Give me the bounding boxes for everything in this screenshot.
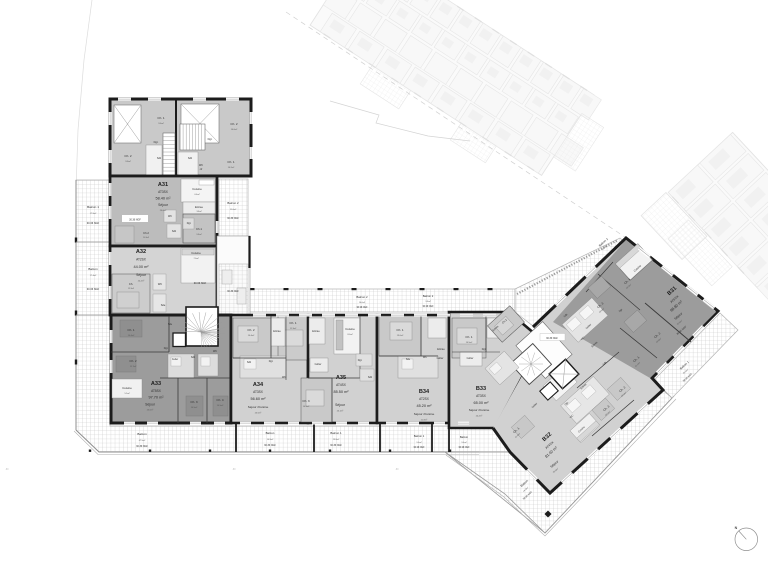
svg-text:Ch. 2: Ch. 2 bbox=[129, 359, 137, 363]
svg-text:16.0m²: 16.0m² bbox=[359, 301, 366, 304]
svg-text:Séjour /Cuisine: Séjour /Cuisine bbox=[414, 412, 435, 416]
svg-text:Cellier: Cellier bbox=[437, 357, 444, 360]
svg-text:Cuisine: Cuisine bbox=[345, 327, 355, 331]
svg-text:Séjour /Cuisine: Séjour /Cuisine bbox=[248, 405, 269, 409]
svg-text:58.40 m²: 58.40 m² bbox=[155, 196, 171, 201]
svg-text:10.3m²: 10.3m² bbox=[143, 236, 149, 239]
svg-text:44.00 m²: 44.00 m² bbox=[133, 264, 149, 269]
svg-text:20.2m²: 20.2m² bbox=[138, 280, 145, 283]
svg-text:AT3SX: AT3SX bbox=[158, 190, 169, 194]
svg-text:9.6m²: 9.6m² bbox=[416, 441, 421, 444]
svg-text:97.70 m²: 97.70 m² bbox=[148, 395, 164, 400]
svg-text:N: N bbox=[735, 526, 738, 530]
svg-text:24.2m²: 24.2m² bbox=[476, 415, 483, 418]
svg-text:10.5m²: 10.5m² bbox=[217, 404, 224, 407]
svg-text:Dgt.: Dgt. bbox=[269, 360, 274, 363]
svg-text:A32: A32 bbox=[136, 249, 146, 255]
svg-text:6.6m²: 6.6m² bbox=[194, 193, 199, 196]
svg-text:A34: A34 bbox=[253, 382, 264, 388]
svg-text:Ch.2: Ch.2 bbox=[143, 231, 149, 235]
svg-text:Ch. 1: Ch. 1 bbox=[227, 160, 235, 164]
svg-text:10.6m²: 10.6m² bbox=[231, 128, 238, 131]
svg-text:Cuisine: Cuisine bbox=[192, 187, 202, 191]
svg-text:30.36 NGF: 30.36 NGF bbox=[357, 307, 369, 309]
svg-text:10.4m²: 10.4m² bbox=[128, 334, 135, 337]
svg-text:AT3SX: AT3SX bbox=[476, 394, 487, 398]
svg-text:25.5m²: 25.5m² bbox=[255, 412, 262, 415]
svg-text:30.36 NGF: 30.36 NGF bbox=[546, 337, 558, 340]
svg-text:Ch. 1: Ch. 1 bbox=[157, 116, 165, 120]
svg-text:Ch. 2: Ch. 2 bbox=[124, 154, 132, 158]
svg-text:Sde: Sde bbox=[168, 323, 173, 326]
svg-text:8.0m²: 8.0m² bbox=[347, 333, 352, 336]
svg-text:30.36 NGF: 30.36 NGF bbox=[87, 287, 100, 291]
svg-text:AT2SX: AT2SX bbox=[136, 258, 147, 262]
svg-text:Entrée: Entrée bbox=[273, 329, 281, 333]
svg-text:Ch. 2: Ch. 2 bbox=[247, 328, 255, 332]
svg-text:WC: WC bbox=[423, 356, 427, 359]
svg-text:9.8m²: 9.8m² bbox=[196, 233, 201, 236]
svg-text:Ch. 1: Ch. 1 bbox=[465, 335, 473, 339]
svg-text:45.20 m²: 45.20 m² bbox=[416, 403, 432, 408]
svg-text:11.6m²: 11.6m² bbox=[230, 208, 237, 211]
svg-text:7.0m²: 7.0m² bbox=[193, 257, 198, 260]
svg-text:Ch.: Ch. bbox=[129, 282, 133, 286]
svg-text:Ch. 3: Ch. 3 bbox=[190, 400, 198, 404]
svg-text:Ch. 1: Ch. 1 bbox=[396, 328, 404, 332]
svg-text:Dgt.: Dgt. bbox=[482, 348, 487, 351]
svg-text:Sdb: Sdb bbox=[368, 376, 373, 379]
svg-text:30.36 NGF: 30.36 NGF bbox=[330, 444, 342, 447]
svg-text:WC: WC bbox=[213, 350, 217, 353]
svg-text:30.36 NGF: 30.36 NGF bbox=[423, 306, 435, 308]
svg-text:WC: WC bbox=[168, 215, 172, 218]
svg-text:AT2SX: AT2SX bbox=[419, 397, 430, 401]
svg-text:Celier: Celier bbox=[172, 358, 178, 361]
svg-text:17.4m²: 17.4m² bbox=[90, 274, 97, 277]
svg-text:Séjour: Séjour bbox=[136, 273, 147, 277]
svg-text:Ch. 2: Ch. 2 bbox=[230, 122, 238, 126]
svg-text:25.1m²: 25.1m² bbox=[337, 410, 344, 413]
svg-text:Ch. 1: Ch. 1 bbox=[289, 321, 297, 325]
svg-text:Sde: Sde bbox=[161, 303, 166, 307]
svg-text:Sdb: Sdb bbox=[247, 361, 252, 364]
svg-text:30.36 NGF: 30.36 NGF bbox=[227, 290, 239, 293]
svg-text:Balcon 2: Balcon 2 bbox=[423, 294, 434, 298]
svg-text:10.5m²: 10.5m² bbox=[191, 406, 198, 409]
svg-text:9.8m²: 9.8m² bbox=[425, 300, 430, 303]
svg-text:clr: clr bbox=[200, 168, 203, 171]
svg-text:30.36 NGF: 30.36 NGF bbox=[194, 281, 207, 285]
svg-text:65.00 m²: 65.00 m² bbox=[473, 400, 489, 405]
svg-text:30.36 NGF: 30.36 NGF bbox=[87, 221, 100, 225]
svg-text:Sdb: Sdb bbox=[157, 157, 162, 160]
svg-text:B34: B34 bbox=[419, 389, 430, 395]
svg-text:Balcon 1: Balcon 1 bbox=[414, 434, 425, 438]
svg-text:WC: WC bbox=[158, 282, 162, 286]
svg-text:Séjour: Séjour bbox=[335, 403, 346, 407]
svg-text:Cuisine: Cuisine bbox=[191, 251, 201, 255]
svg-text:10.5m²: 10.5m² bbox=[303, 405, 310, 408]
svg-text:56.60 m²: 56.60 m² bbox=[250, 396, 266, 401]
svg-text:5.5m²: 5.5m² bbox=[124, 392, 129, 395]
svg-text:JO: JO bbox=[232, 468, 235, 471]
svg-text:A35: A35 bbox=[336, 375, 346, 381]
svg-text:Dgt.: Dgt. bbox=[154, 140, 159, 144]
svg-text:A31: A31 bbox=[158, 182, 168, 188]
svg-text:Balcon 1: Balcon 1 bbox=[330, 431, 342, 435]
svg-text:Balcon 2: Balcon 2 bbox=[356, 295, 368, 299]
svg-text:Balcon: Balcon bbox=[460, 435, 469, 439]
svg-text:Cuisine: Cuisine bbox=[122, 386, 132, 390]
svg-text:23.8m²: 23.8m² bbox=[333, 438, 340, 441]
svg-text:Ch. 1: Ch. 1 bbox=[127, 328, 135, 332]
svg-text:Dgt.: Dgt. bbox=[208, 137, 213, 141]
svg-text:A33: A33 bbox=[151, 381, 161, 387]
svg-text:Balcon 1: Balcon 1 bbox=[87, 205, 99, 209]
svg-text:25.6m²: 25.6m² bbox=[160, 209, 167, 212]
svg-text:30.36 NGF: 30.36 NGF bbox=[264, 444, 276, 447]
svg-text:10.5m²: 10.5m² bbox=[466, 341, 473, 344]
svg-text:30.36 NGF: 30.36 NGF bbox=[227, 217, 239, 220]
svg-text:JO: JO bbox=[395, 468, 398, 471]
svg-text:Ch.1: Ch.1 bbox=[196, 227, 202, 231]
svg-text:AT3SX: AT3SX bbox=[253, 390, 264, 394]
svg-text:WC: WC bbox=[199, 164, 203, 167]
svg-text:10.2m²: 10.2m² bbox=[228, 166, 235, 169]
svg-text:Balcon: Balcon bbox=[266, 431, 275, 435]
svg-text:Cellier: Cellier bbox=[467, 357, 474, 360]
svg-text:Séjour /Cuisine: Séjour /Cuisine bbox=[469, 408, 490, 412]
svg-text:Entrée: Entrée bbox=[312, 329, 320, 333]
svg-text:13.3m²: 13.3m² bbox=[128, 287, 134, 290]
svg-text:10.9m²: 10.9m² bbox=[267, 438, 274, 441]
svg-text:Sde: Sde bbox=[406, 358, 411, 361]
svg-text:Balcon: Balcon bbox=[88, 267, 98, 271]
svg-text:17.9m²: 17.9m² bbox=[90, 212, 97, 215]
svg-text:30.36 NGF: 30.36 NGF bbox=[129, 218, 141, 221]
svg-text:11.3m²: 11.3m² bbox=[290, 327, 297, 330]
svg-text:Sdb: Sdb bbox=[191, 356, 196, 359]
svg-text:30.36 NGF: 30.36 NGF bbox=[459, 447, 471, 449]
svg-text:Sdb: Sdb bbox=[172, 230, 177, 233]
svg-text:Sdb: Sdb bbox=[188, 157, 193, 160]
svg-text:13.0m²: 13.0m² bbox=[397, 334, 404, 337]
svg-text:Ch. 3: Ch. 3 bbox=[302, 399, 310, 403]
svg-text:47.5m²: 47.5m² bbox=[139, 439, 146, 442]
svg-text:Entrée: Entrée bbox=[437, 347, 445, 351]
svg-text:B33: B33 bbox=[476, 386, 486, 392]
svg-text:Ch. 4: Ch. 4 bbox=[216, 398, 224, 402]
svg-text:Dgt.: Dgt. bbox=[358, 359, 363, 362]
svg-text:AT5SX: AT5SX bbox=[151, 389, 162, 393]
svg-text:JO: JO bbox=[5, 468, 8, 471]
svg-text:9.8m²: 9.8m² bbox=[125, 160, 131, 163]
svg-text:Balcon: Balcon bbox=[137, 432, 147, 436]
svg-text:AT4SX: AT4SX bbox=[336, 383, 347, 387]
svg-text:Balcon 2: Balcon 2 bbox=[227, 201, 239, 205]
svg-text:WC: WC bbox=[282, 376, 286, 379]
svg-text:9.6m²: 9.6m² bbox=[158, 122, 164, 125]
svg-text:21.8m²: 21.8m² bbox=[421, 419, 428, 422]
svg-text:3.8m²: 3.8m² bbox=[196, 210, 201, 213]
svg-text:10.4m²: 10.4m² bbox=[248, 334, 255, 337]
svg-text:Séjour: Séjour bbox=[145, 403, 156, 407]
svg-text:Dgt.: Dgt. bbox=[187, 222, 192, 225]
svg-text:Entrée: Entrée bbox=[195, 205, 203, 209]
svg-text:11.7m²: 11.7m² bbox=[130, 365, 137, 368]
svg-text:85.50 m²: 85.50 m² bbox=[333, 389, 349, 394]
svg-text:30.36 NGF: 30.36 NGF bbox=[414, 447, 426, 449]
svg-text:Dgt.: Dgt. bbox=[164, 347, 169, 350]
svg-text:30.36 NGF: 30.36 NGF bbox=[136, 445, 148, 448]
svg-text:Cellier: Cellier bbox=[315, 363, 322, 366]
svg-text:9.4m²: 9.4m² bbox=[461, 441, 466, 444]
svg-text:Séjour: Séjour bbox=[158, 203, 169, 207]
svg-text:23.6m²: 23.6m² bbox=[147, 409, 154, 412]
